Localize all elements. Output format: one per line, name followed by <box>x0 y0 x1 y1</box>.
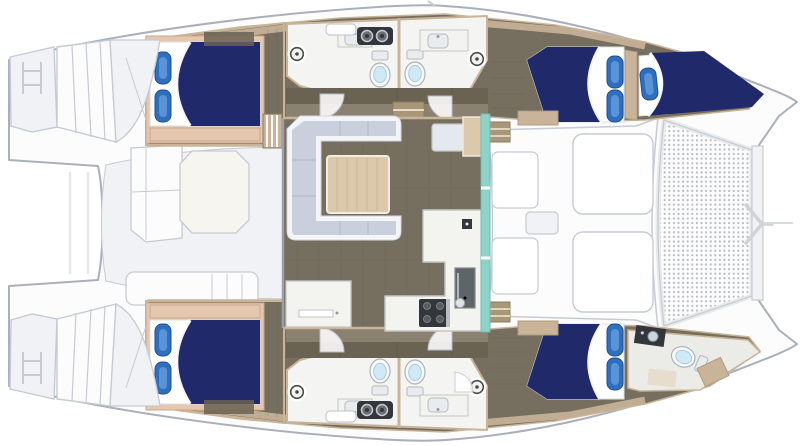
catamaran-floorplan <box>0 0 800 446</box>
nav-seat <box>432 124 464 151</box>
pillow <box>639 67 658 100</box>
cockpit-table <box>180 151 249 233</box>
foredeck <box>488 118 658 328</box>
pillow <box>607 56 623 88</box>
stove <box>419 299 450 327</box>
wardrobe <box>204 32 254 46</box>
starboard-forward-steps <box>488 302 510 322</box>
glass-door-teal <box>481 114 490 332</box>
port-hull-ladder <box>263 114 282 148</box>
sun-pad <box>573 134 653 214</box>
sideboard-drawer <box>299 310 333 317</box>
bow-trampoline-area <box>658 120 793 326</box>
sink <box>428 34 448 48</box>
duvet-navy <box>177 42 261 126</box>
sideboard <box>286 281 351 327</box>
pillow <box>155 90 171 122</box>
toilet <box>370 51 390 87</box>
salon-table <box>327 156 389 213</box>
shower-drain <box>289 46 306 63</box>
foot-bench <box>150 128 260 141</box>
toilet <box>405 50 425 86</box>
crew-duvet-navy <box>648 51 764 116</box>
port-forward-steps <box>488 122 510 142</box>
cockpit-bench-left <box>131 145 182 242</box>
deck-winches <box>357 27 393 45</box>
floorplan-svg <box>0 0 800 446</box>
galley-sink <box>456 299 465 308</box>
pillow <box>607 90 623 122</box>
nav-desk <box>463 117 483 156</box>
crew-mat <box>647 369 677 388</box>
trampoline-net <box>658 120 752 326</box>
foot-shelf <box>518 111 558 125</box>
sun-pad <box>573 232 653 312</box>
deck-hatch-bar <box>326 24 356 35</box>
stern-davits <box>70 172 88 274</box>
foredeck-seat <box>492 238 538 294</box>
shower-drain <box>469 51 486 68</box>
aft-cockpit <box>102 145 284 305</box>
foredeck-seat <box>492 152 538 208</box>
bulkhead <box>625 50 637 120</box>
wardrobe-band <box>286 88 488 104</box>
foredeck-table <box>526 212 558 234</box>
